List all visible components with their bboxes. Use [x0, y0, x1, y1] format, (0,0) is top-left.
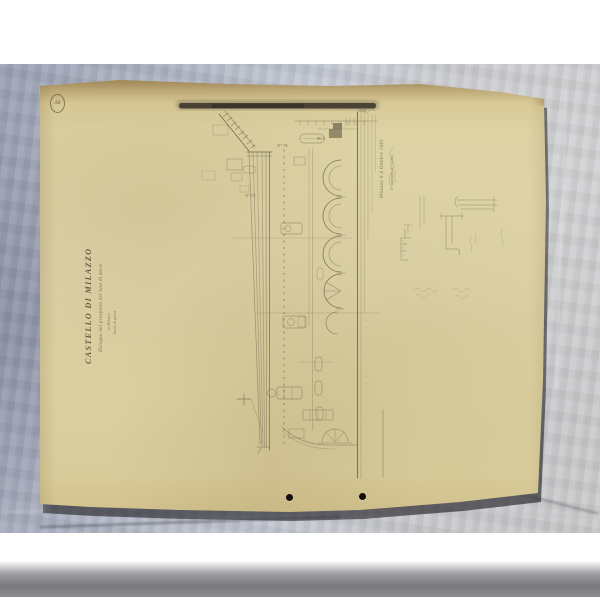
drawing-subtitle-2: in Milazzo	[106, 313, 111, 330]
measure-label: N° 74	[277, 143, 287, 148]
measure-label: 89.3	[317, 136, 325, 141]
drawing-subtitle-1: Disegno del prospetto del lato di mare	[99, 264, 104, 352]
archive-stamp-text: AR	[54, 101, 60, 106]
archive-stamp: AR	[50, 94, 65, 113]
measure-label: N° 73	[245, 193, 255, 198]
backdrop-bottom-shadow	[0, 561, 600, 597]
drawing-subtitle-3: Scala di palmi	[112, 311, 117, 334]
signature-line-2: Il Capitano del Genio	[389, 155, 394, 190]
drawing-title: Castello di Milazzo	[84, 248, 93, 364]
paper-sheet	[36, 78, 550, 518]
measure-label: 2.61	[359, 108, 367, 113]
signature-line-1: Milazzo lì 4 Ottobre 1841	[380, 139, 385, 198]
photograph-of-drawing: { "colors": { "backdrop_left": "#9ba2b5"…	[0, 0, 600, 600]
punch-hole	[286, 494, 293, 501]
punch-hole	[359, 493, 366, 500]
